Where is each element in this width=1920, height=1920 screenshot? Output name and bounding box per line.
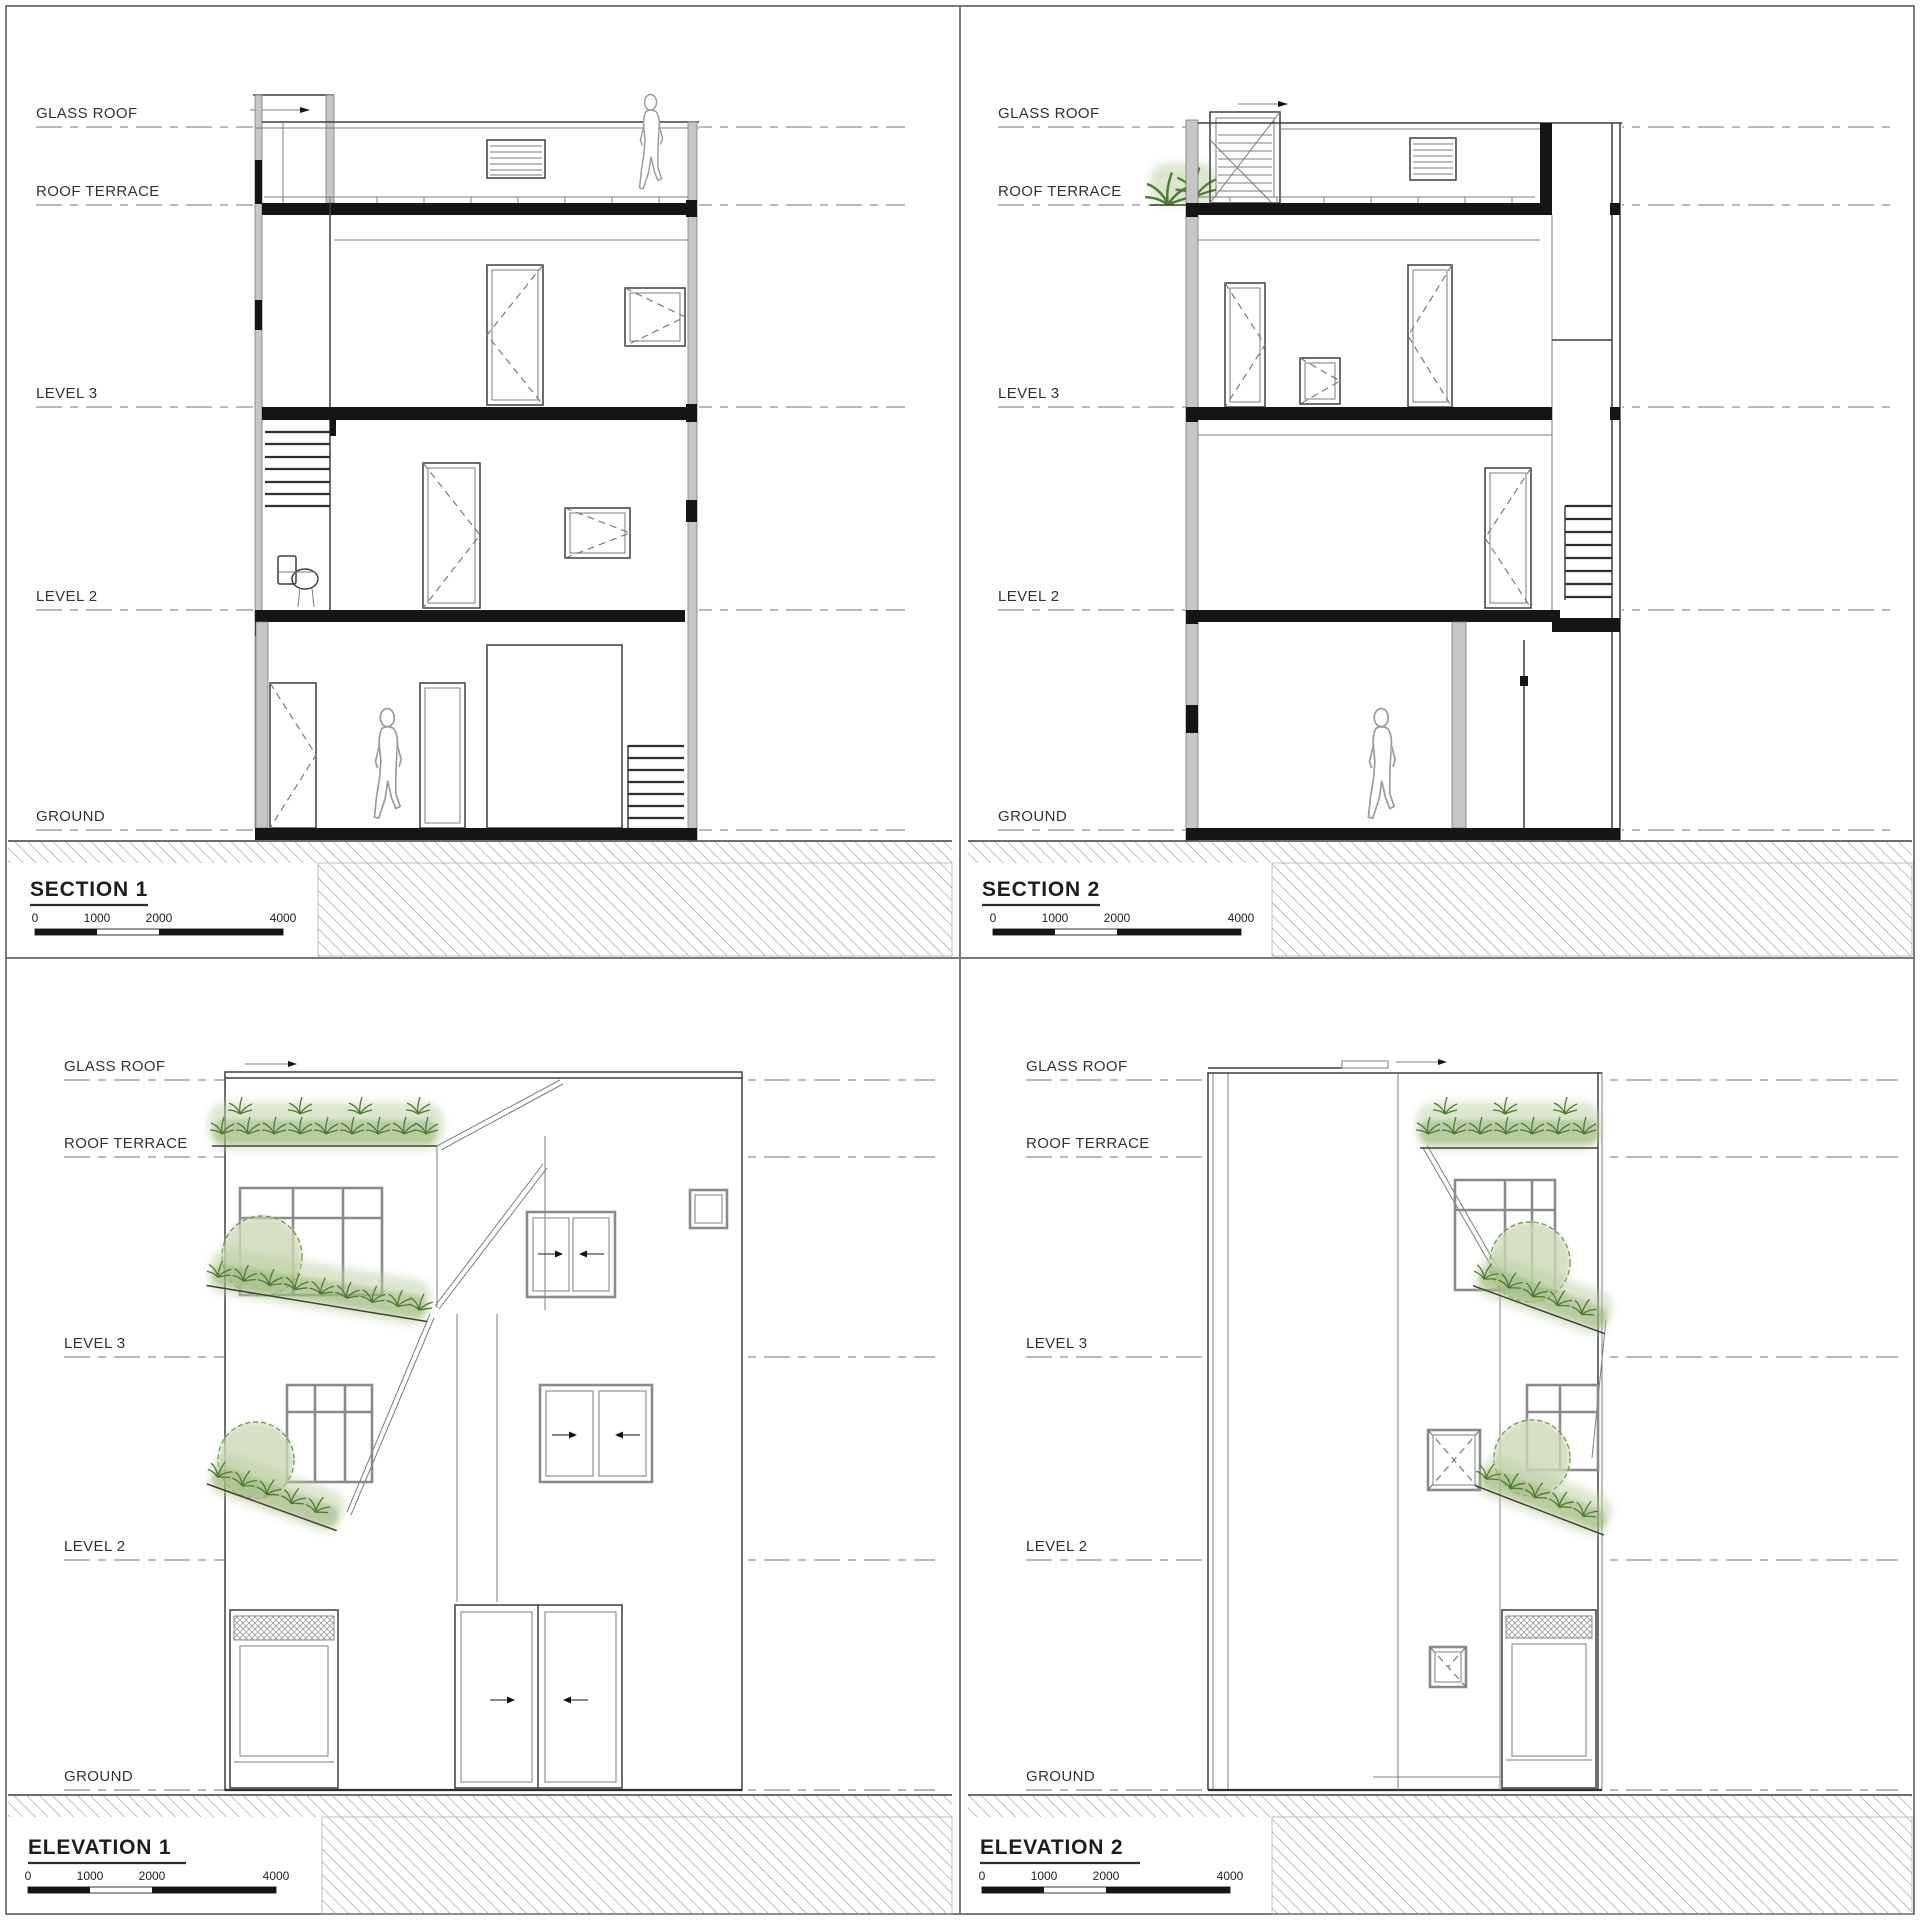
level-label-glass-roof: GLASS ROOF bbox=[1026, 1058, 1128, 1075]
panel-title: SECTION 2 bbox=[982, 878, 1100, 901]
level-label-ground: GROUND bbox=[64, 1768, 133, 1785]
scale-bar: 0 1000 2000 4000 bbox=[979, 1869, 1244, 1893]
level-label-level-3: LEVEL 3 bbox=[998, 385, 1059, 402]
scale-bar: 0 1000 2000 4000 bbox=[25, 1869, 290, 1893]
planter-roof-terrace bbox=[208, 1097, 444, 1150]
scale-label: 0 bbox=[25, 1869, 32, 1883]
scale-label: 4000 bbox=[1217, 1869, 1244, 1883]
terrace-plant bbox=[1145, 163, 1216, 205]
stair-half-landing-slab bbox=[1552, 618, 1620, 632]
sheet-canvas: GLASS ROOF ROOF TERRACE LEVEL 3 LEVEL 2 … bbox=[0, 0, 1920, 1920]
section-1-building bbox=[250, 93, 699, 842]
scale-label: 0 bbox=[32, 911, 39, 925]
panel-title: ELEVATION 1 bbox=[28, 1836, 171, 1859]
level-3-slab bbox=[1186, 407, 1552, 420]
ground-hatch bbox=[8, 841, 952, 956]
panel-title: SECTION 1 bbox=[30, 878, 148, 901]
roof-terrace-slab bbox=[262, 203, 697, 215]
panel-elevation-1: GLASS ROOF ROOF TERRACE LEVEL 3 LEVEL 2 … bbox=[8, 1058, 952, 1914]
ground-slab bbox=[255, 828, 697, 840]
level-label-level-3: LEVEL 3 bbox=[1026, 1335, 1087, 1352]
scale-label: 0 bbox=[979, 1869, 986, 1883]
elevation-2-building bbox=[1208, 1059, 1618, 1790]
level-2-slab bbox=[262, 610, 685, 622]
ground-slab bbox=[1186, 828, 1620, 840]
scale-bar: 0 1000 2000 4000 bbox=[990, 911, 1255, 935]
level-label-roof-terrace: ROOF TERRACE bbox=[998, 183, 1122, 200]
scale-label: 1000 bbox=[1031, 1869, 1058, 1883]
level-label-ground: GROUND bbox=[36, 808, 105, 825]
panel-section-1: GLASS ROOF ROOF TERRACE LEVEL 3 LEVEL 2 … bbox=[8, 93, 952, 956]
panel-title: ELEVATION 2 bbox=[980, 1836, 1123, 1859]
level-label-level-2: LEVEL 2 bbox=[1026, 1538, 1087, 1555]
level-3-slab bbox=[262, 407, 697, 420]
level-label-ground: GROUND bbox=[1026, 1768, 1095, 1785]
level-2-slab bbox=[1186, 610, 1560, 622]
scale-label: 2000 bbox=[1104, 911, 1131, 925]
elevation-1-building bbox=[201, 1061, 742, 1790]
level-label-roof-terrace: ROOF TERRACE bbox=[1026, 1135, 1150, 1152]
scale-bar: 0 1000 2000 4000 bbox=[32, 911, 297, 935]
level-label-ground: GROUND bbox=[998, 808, 1067, 825]
level-label-level-2: LEVEL 2 bbox=[36, 588, 97, 605]
scale-label: 4000 bbox=[270, 911, 297, 925]
panel-elevation-2: GLASS ROOF ROOF TERRACE LEVEL 3 LEVEL 2 … bbox=[968, 1058, 1912, 1914]
title-block: SECTION 1 0 1000 2000 4000 bbox=[30, 878, 297, 935]
level-label-glass-roof: GLASS ROOF bbox=[998, 105, 1100, 122]
scale-label: 2000 bbox=[1093, 1869, 1120, 1883]
terrace-side-wall bbox=[1540, 123, 1552, 215]
drawing-sheet: GLASS ROOF ROOF TERRACE LEVEL 3 LEVEL 2 … bbox=[0, 0, 1920, 1920]
panel-section-2: GLASS ROOF ROOF TERRACE LEVEL 3 LEVEL 2 … bbox=[968, 101, 1912, 956]
title-block: SECTION 2 0 1000 2000 4000 bbox=[982, 878, 1255, 935]
level-label-glass-roof: GLASS ROOF bbox=[36, 105, 138, 122]
level-label-glass-roof: GLASS ROOF bbox=[64, 1058, 166, 1075]
scale-label: 4000 bbox=[263, 1869, 290, 1883]
level-label-level-2: LEVEL 2 bbox=[64, 1538, 125, 1555]
scale-label: 1000 bbox=[1042, 911, 1069, 925]
interior-column bbox=[1452, 622, 1466, 828]
scale-label: 1000 bbox=[84, 911, 111, 925]
scale-label: 2000 bbox=[139, 1869, 166, 1883]
roof-terrace-slab bbox=[1198, 203, 1540, 215]
level-label-roof-terrace: ROOF TERRACE bbox=[36, 183, 160, 200]
level-label-level-2: LEVEL 2 bbox=[998, 588, 1059, 605]
scale-label: 2000 bbox=[146, 911, 173, 925]
scale-label: 1000 bbox=[77, 1869, 104, 1883]
scale-label: 0 bbox=[990, 911, 997, 925]
stair-bulkhead-wall bbox=[326, 95, 334, 203]
right-wall bbox=[686, 122, 697, 840]
title-block: ELEVATION 1 0 1000 2000 4000 bbox=[25, 1836, 290, 1893]
section-2-building bbox=[1145, 101, 1622, 840]
level-label-level-3: LEVEL 3 bbox=[36, 385, 97, 402]
ground-hatch bbox=[968, 841, 1912, 956]
level-label-level-3: LEVEL 3 bbox=[64, 1335, 125, 1352]
title-block: ELEVATION 2 0 1000 2000 4000 bbox=[979, 1836, 1244, 1893]
scale-label: 4000 bbox=[1228, 911, 1255, 925]
planter-roof-terrace bbox=[1416, 1097, 1602, 1150]
level-label-roof-terrace: ROOF TERRACE bbox=[64, 1135, 188, 1152]
